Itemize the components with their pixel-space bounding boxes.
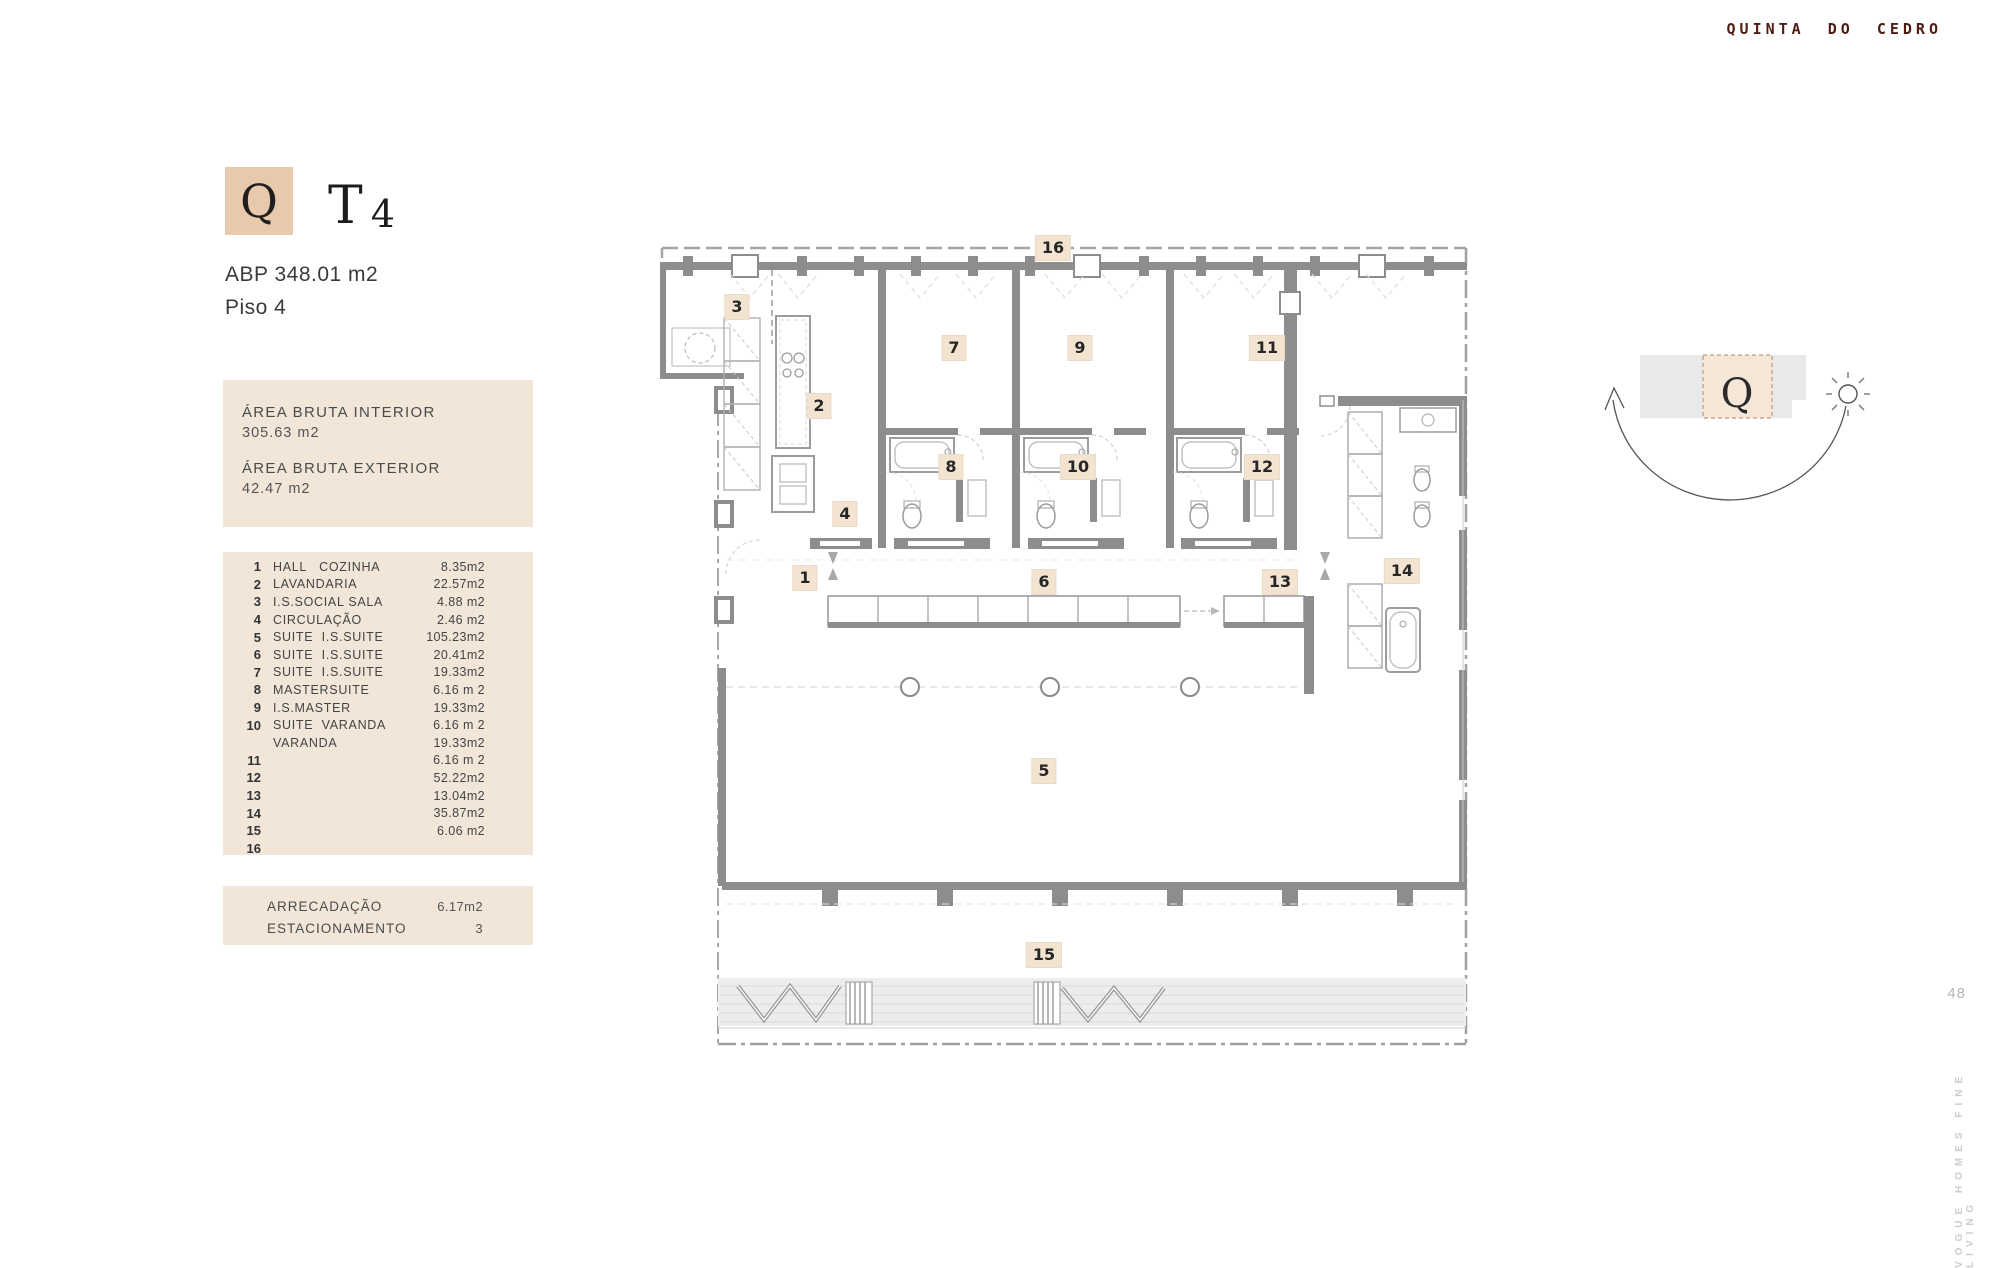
room-area-value: 52.22m2	[399, 771, 485, 785]
room-number: 1	[233, 559, 261, 574]
extra-row: ESTACIONAMENTO3	[267, 917, 483, 939]
gross-areas-box: ÁREA BRUTA INTERIOR 305.63 m2 ÁREA BRUTA…	[223, 380, 533, 527]
page-number: 48	[1947, 985, 1966, 1002]
exterior-area-value: 42.47 m2	[242, 481, 533, 497]
room-number: 12	[233, 770, 261, 785]
room-row: 5SUITE I.S.SUITE105.23m2	[233, 628, 485, 646]
unit-abp-area: ABP 348.01 m2	[225, 263, 378, 287]
room-row: 7SUITE I.S.SUITE19.33m2	[233, 664, 485, 682]
room-label: SUITE I.S.SUITE	[273, 648, 399, 662]
interior-area-label: ÁREA BRUTA INTERIOR	[242, 404, 533, 421]
room-number: 13	[233, 788, 261, 803]
room-area-value: 35.87m2	[399, 806, 485, 820]
unit-type-number: 4	[371, 192, 395, 236]
room-row: 9I.S.MASTER19.33m2	[233, 699, 485, 717]
room-area-value: 13.04m2	[399, 789, 485, 803]
floor-plan-drawing	[660, 240, 1470, 1050]
room-number: 4	[233, 612, 261, 627]
room-number: 8	[233, 682, 261, 697]
room-label: CIRCULAÇÃO	[273, 613, 399, 627]
room-label: VARANDA	[273, 736, 399, 750]
room-area-value: 20.41m2	[399, 648, 485, 662]
interior-area-group: ÁREA BRUTA INTERIOR 305.63 m2	[242, 404, 533, 441]
room-label: LAVANDARIA	[273, 577, 399, 591]
room-row: 4CIRCULAÇÃO2.46 m2	[233, 611, 485, 629]
room-area-value: 19.33m2	[399, 736, 485, 750]
room-row: 156.06 m2	[233, 822, 485, 840]
extra-label: ARRECADAÇÃO	[267, 899, 382, 914]
room-area-value: 4.88 m2	[399, 595, 485, 609]
room-area-value: 6.06 m2	[399, 824, 485, 838]
room-number: 2	[233, 577, 261, 592]
interior-area-value: 305.63 m2	[242, 425, 533, 441]
room-area-value: 6.16 m 2	[399, 683, 485, 697]
room-number: 14	[233, 806, 261, 821]
room-number: 15	[233, 823, 261, 838]
unit-floor: Piso 4	[225, 296, 286, 320]
brand-title: QUINTA DO CEDRO	[1727, 20, 1942, 38]
room-number: 7	[233, 665, 261, 680]
unit-type-prefix: T	[328, 176, 365, 236]
room-area-value: 6.16 m 2	[399, 718, 485, 732]
room-area-value: 2.46 m2	[399, 613, 485, 627]
unit-type: T4	[328, 176, 389, 236]
extra-value: 3	[475, 921, 483, 936]
room-row: 16	[233, 840, 485, 858]
sun-icon	[1826, 372, 1870, 416]
room-row: 3I.S.SOCIAL SALA4.88 m2	[233, 593, 485, 611]
room-area-value: 19.33m2	[399, 701, 485, 715]
storage-parking-box: ARRECADAÇÃO6.17m2ESTACIONAMENTO3	[223, 886, 533, 945]
room-label: HALL COZINHA	[273, 560, 399, 574]
room-schedule-box: 1HALL COZINHA8.35m22LAVANDARIA22.57m23I.…	[223, 552, 533, 855]
room-area-value: 19.33m2	[399, 665, 485, 679]
room-area-value: 6.16 m 2	[399, 753, 485, 767]
room-number: 9	[233, 700, 261, 715]
orientation-compass: Q	[1580, 330, 1880, 540]
room-row: 10SUITE VARANDA6.16 m 2	[233, 716, 485, 734]
room-row: 6SUITE I.S.SUITE20.41m2	[233, 646, 485, 664]
unit-logo-badge: Q	[225, 167, 293, 235]
room-area-value: 22.57m2	[399, 577, 485, 591]
room-row: 1252.22m2	[233, 769, 485, 787]
room-number: 3	[233, 594, 261, 609]
room-row: 1313.04m2	[233, 787, 485, 805]
room-label: MASTERSUITE	[273, 683, 399, 697]
room-label: I.S.MASTER	[273, 701, 399, 715]
room-row: 1435.87m2	[233, 804, 485, 822]
extra-value: 6.17m2	[437, 899, 483, 914]
extra-row: ARRECADAÇÃO6.17m2	[267, 895, 483, 917]
exterior-area-label: ÁREA BRUTA EXTERIOR	[242, 460, 533, 477]
room-row: 2LAVANDARIA22.57m2	[233, 576, 485, 594]
room-label: I.S.SOCIAL SALA	[273, 595, 399, 609]
brochure-page: { "brand": "QUINTA DO CEDRO", "unit": { …	[0, 0, 2000, 1268]
room-row: 116.16 m 2	[233, 752, 485, 770]
room-label: SUITE I.S.SUITE	[273, 665, 399, 679]
room-row: VARANDA19.33m2	[233, 734, 485, 752]
compass-unit-letter: Q	[1721, 371, 1754, 417]
room-number: 6	[233, 647, 261, 662]
extra-label: ESTACIONAMENTO	[267, 921, 407, 936]
room-label: SUITE VARANDA	[273, 718, 399, 732]
room-number: 11	[233, 753, 261, 768]
room-number: 5	[233, 630, 261, 645]
room-area-value: 105.23m2	[399, 630, 485, 644]
unit-logo-letter: Q	[240, 178, 278, 224]
room-label: SUITE I.S.SUITE	[273, 630, 399, 644]
exterior-area-group: ÁREA BRUTA EXTERIOR 42.47 m2	[242, 460, 533, 497]
room-number: 16	[233, 841, 261, 856]
publisher-side-text: VOGUE HOMES FINE LIVING	[1954, 1040, 1976, 1268]
room-row: 1HALL COZINHA8.35m2	[233, 558, 485, 576]
room-area-value: 8.35m2	[399, 560, 485, 574]
room-number: 10	[233, 718, 261, 733]
room-row: 8MASTERSUITE6.16 m 2	[233, 681, 485, 699]
